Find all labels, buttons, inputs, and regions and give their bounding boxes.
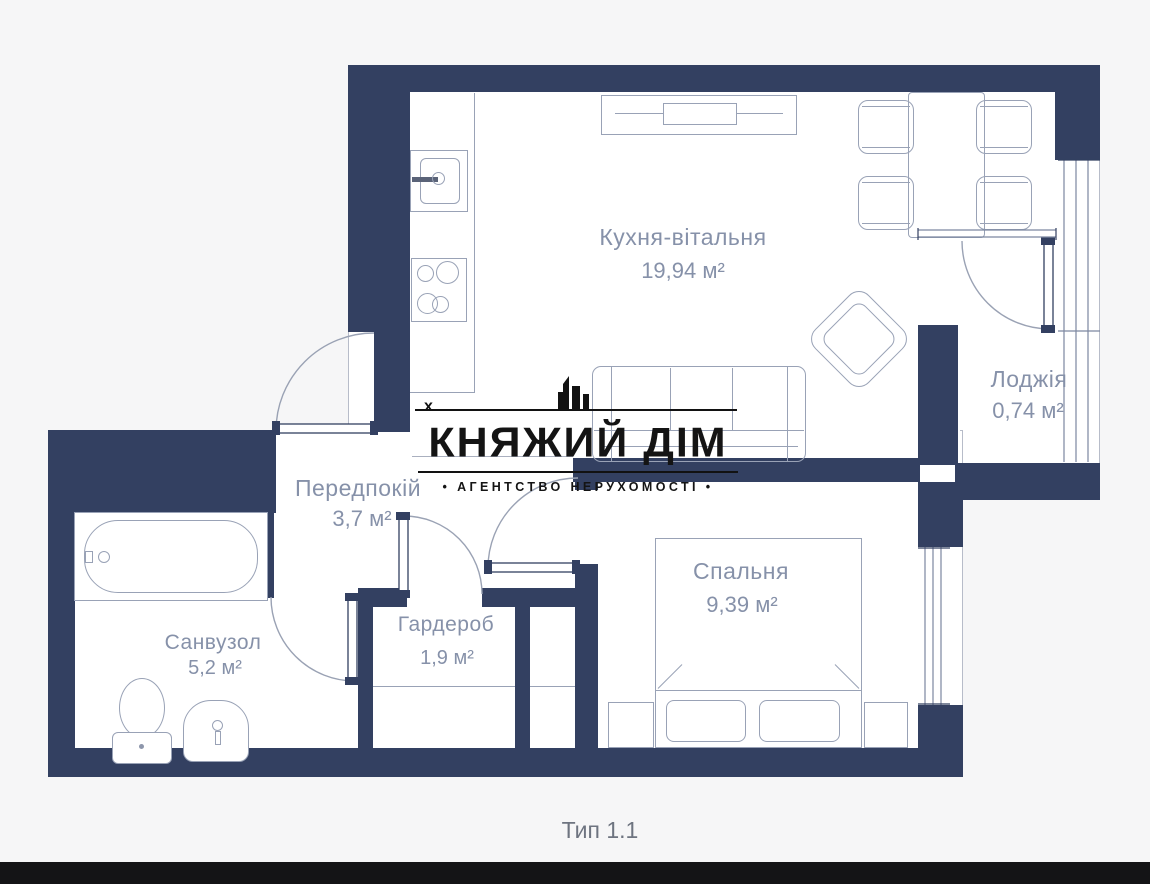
bath-faucet-plate bbox=[85, 551, 93, 563]
hallway-room-area: 3,7 м² bbox=[272, 506, 452, 532]
bedroom-room-area: 9,39 м² bbox=[652, 592, 832, 618]
chair-rails bbox=[862, 106, 910, 148]
wall-bedroom-right-upper bbox=[918, 482, 963, 547]
bottom-black-bar bbox=[0, 862, 1150, 884]
sink-faucet-stem bbox=[215, 731, 221, 745]
bed-blanket-line bbox=[656, 690, 861, 691]
logo-bottom-line bbox=[418, 471, 738, 473]
wall-loggia-bottom bbox=[955, 463, 1100, 500]
toilet-bowl bbox=[119, 678, 165, 738]
niche-shelf-line bbox=[530, 686, 575, 687]
plan-type-label: Тип 1.1 bbox=[540, 817, 660, 844]
loggia-room-area: 0,74 м² bbox=[948, 398, 1108, 424]
stove-burner bbox=[432, 296, 449, 313]
tv-set bbox=[663, 103, 737, 125]
wall-loggia-left bbox=[918, 325, 958, 465]
wall-left-outer bbox=[48, 430, 75, 777]
chair-rails bbox=[980, 106, 1028, 148]
dining-table bbox=[908, 92, 985, 238]
kitchen-room-area: 19,94 м² bbox=[583, 258, 783, 284]
chair-rails bbox=[980, 182, 1028, 224]
bathroom-room-area: 5,2 м² bbox=[125, 657, 305, 680]
pillow bbox=[759, 700, 840, 742]
nightstand bbox=[864, 702, 908, 748]
bathtub-basin bbox=[84, 520, 258, 593]
sink-faucet-dot bbox=[212, 720, 223, 731]
wall-kitchen-left bbox=[348, 92, 410, 332]
wall-wardrobe-top-left bbox=[358, 588, 407, 607]
stove-burner bbox=[436, 261, 459, 284]
agency-logo-subtitle: • АГЕНТСТВО НЕРУХОМОСТІ • bbox=[408, 480, 748, 494]
loggia-room-name: Лоджія bbox=[949, 366, 1109, 393]
wall-bathroom-top bbox=[48, 430, 276, 513]
pillow bbox=[666, 700, 746, 742]
wall-bedroom-right-lower bbox=[918, 705, 963, 777]
bathroom-room-name: Санвузол bbox=[123, 631, 303, 655]
kitchen-faucet-dot bbox=[432, 172, 445, 185]
wall-kitchen-left-stub bbox=[374, 332, 410, 432]
toilet-button bbox=[139, 744, 144, 749]
bath-faucet-dot bbox=[98, 551, 110, 563]
agency-logo-title: КНЯЖИЙ ДІМ bbox=[408, 420, 748, 467]
wardrobe-shelf-line bbox=[373, 686, 515, 687]
wardrobe-room-name: Гардероб bbox=[366, 613, 526, 637]
wardrobe-room-area: 1,9 м² bbox=[367, 647, 527, 670]
logo-top-line bbox=[415, 409, 737, 411]
nightstand bbox=[608, 702, 654, 748]
wall-top-right-corner bbox=[1055, 92, 1100, 160]
wall-bedroom-left-lower bbox=[575, 564, 598, 748]
chair-rails bbox=[862, 182, 910, 224]
x-marker: х bbox=[424, 398, 433, 416]
bedroom-room-name: Спальня bbox=[651, 558, 831, 585]
wall-top bbox=[348, 65, 1100, 92]
kitchen-room-name: Кухня-вітальня bbox=[583, 224, 783, 251]
stove-burner bbox=[417, 265, 434, 282]
sofa-armrest bbox=[787, 367, 788, 461]
floor-plan-page: Кухня-вітальня 19,94 м² Лоджія 0,74 м² П… bbox=[0, 0, 1150, 884]
kitchen-counter bbox=[410, 93, 475, 393]
